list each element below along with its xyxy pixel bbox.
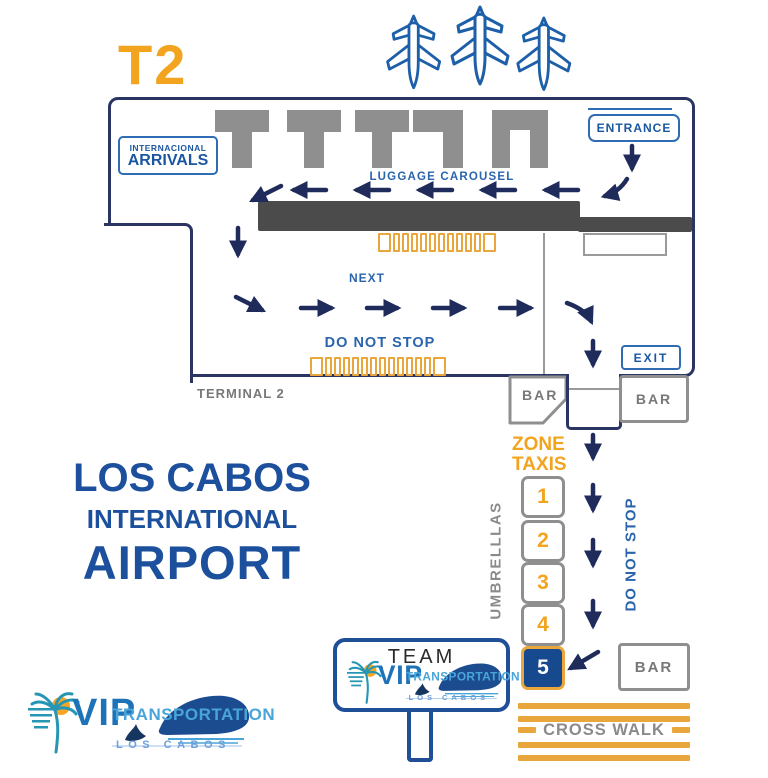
- gate-icon: [355, 110, 409, 168]
- vip-logo-small: VIP TRANSPORTATION LOS CABOS: [347, 658, 502, 707]
- taxi-stand-5-highlighted: 5: [521, 646, 565, 690]
- exit-door: [566, 374, 622, 430]
- bar-right-box: BAR: [619, 375, 689, 423]
- gate-icon: [492, 110, 548, 168]
- taxi-stand-number: 1: [537, 485, 549, 509]
- next-label: NEXT: [332, 271, 402, 285]
- crosswalk: CROSS WALK: [518, 703, 690, 761]
- umbrellas-vertical-label: UMBRELLLAS: [488, 501, 505, 621]
- do-not-stop-label: DO NOT STOP: [300, 335, 460, 351]
- door-threshold-line: [569, 388, 619, 390]
- gate-icon: [287, 110, 341, 168]
- airplane-icon: [452, 7, 508, 84]
- terminal-notch: [104, 223, 193, 383]
- airport-title: LOS CABOS INTERNATIONAL AIRPORT: [46, 458, 338, 586]
- taxi-stand-number: 4: [537, 613, 549, 637]
- terminal-code-label: T2: [118, 32, 187, 97]
- entrance-label: ENTRANCE: [597, 121, 672, 135]
- interior-divider: [543, 233, 545, 374]
- zone-taxis-label: ZONE TAXIS: [512, 435, 567, 475]
- luggage-carousel-belt: [258, 201, 580, 231]
- exit-label: EXIT: [634, 351, 669, 365]
- arrivals-line2: ARRIVALS: [128, 153, 209, 169]
- do-not-stop-vertical-label: DO NOT STOP: [623, 495, 640, 615]
- bar-right-label: BAR: [636, 391, 672, 407]
- barrier-row: [310, 357, 446, 376]
- airport-title-line1: LOS CABOS: [46, 458, 338, 498]
- taxi-stand-3: 3: [521, 562, 565, 604]
- airport-title-line2: INTERNATIONAL: [46, 506, 338, 532]
- gate-icon: [413, 110, 463, 168]
- counter-outline: [583, 233, 667, 256]
- taxi-stand-4: 4: [521, 604, 565, 646]
- taxi-stand-1: 1: [521, 476, 565, 518]
- bar-left-box: BAR: [508, 375, 570, 425]
- gate-icon: [215, 110, 269, 168]
- entrance-box: ENTRANCE: [588, 114, 680, 142]
- taxi-stand-2: 2: [521, 520, 565, 562]
- arrivals-line1: INTERNACIONAL: [130, 143, 207, 153]
- vip-logo-large: VIP TRANSPORTATION LOS CABOS: [28, 688, 250, 758]
- logo-los-cabos-text: LOS CABOS: [116, 739, 231, 751]
- logo-transportation-text: TRANSPORTATION: [406, 670, 520, 684]
- arrow-to-zone5: [571, 652, 598, 668]
- bar-curbside-label: BAR: [635, 659, 674, 676]
- logo-los-cabos-text: LOS CABOS: [409, 694, 489, 702]
- logo-transportation-text: TRANSPORTATION: [112, 705, 275, 725]
- taxi-stand-number: 5: [537, 656, 549, 680]
- luggage-carousel-belt-extension: [578, 217, 692, 232]
- zone-label-line1: ZONE: [512, 435, 567, 455]
- airport-map: T2 INTERNACIONAL ARRIVALS: [0, 0, 768, 778]
- zone-label-line2: TAXIS: [512, 455, 567, 475]
- exit-box: EXIT: [621, 345, 681, 370]
- airport-title-line3: AIRPORT: [46, 539, 338, 586]
- taxi-stand-number: 3: [537, 571, 549, 595]
- airplane-icon: [518, 18, 570, 90]
- sign-handle: [407, 708, 433, 762]
- crosswalk-label: CROSS WALK: [540, 721, 668, 740]
- entrance-wall-line: [588, 108, 672, 110]
- terminal-caption: TERMINAL 2: [197, 386, 285, 401]
- taxi-stand-number: 2: [537, 529, 549, 553]
- luggage-carousel-label: LUGGAGE CAROUSEL: [352, 171, 532, 183]
- international-arrivals-box: INTERNACIONAL ARRIVALS: [118, 136, 218, 175]
- airplane-icon: [388, 16, 440, 88]
- airplane-icons: [382, 4, 582, 96]
- bar-left-label: BAR: [522, 387, 558, 403]
- bar-curbside-box: BAR: [618, 643, 690, 691]
- barrier-row: [378, 233, 496, 252]
